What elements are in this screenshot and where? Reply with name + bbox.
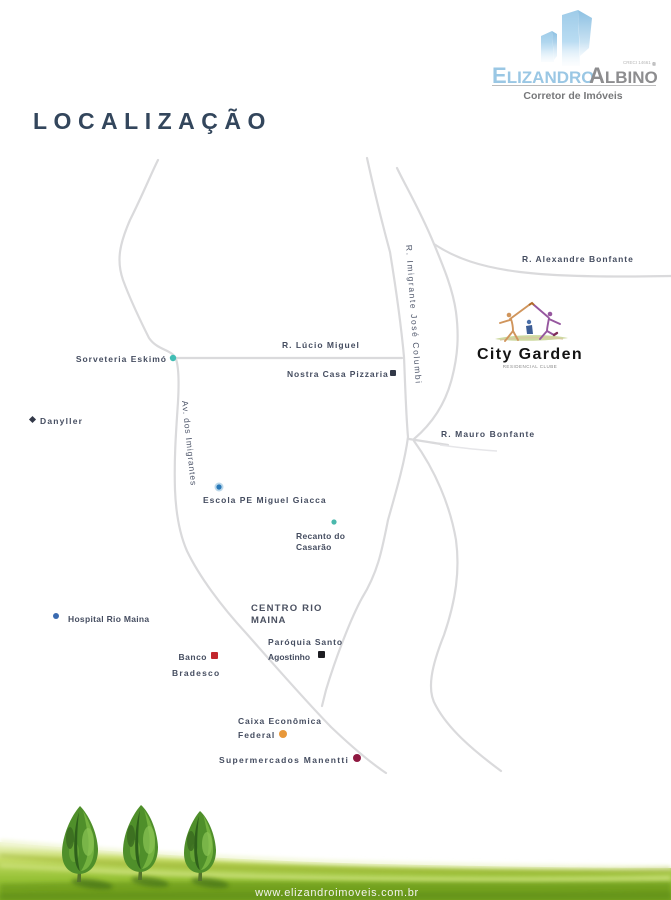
svg-text:Recanto do: Recanto do <box>296 531 345 541</box>
svg-text:Hospital Rio Maina: Hospital Rio Maina <box>68 614 149 624</box>
svg-text:Agostinho: Agostinho <box>268 652 310 662</box>
svg-text:CRECI 14661: CRECI 14661 <box>623 60 651 65</box>
svg-text:Corretor de Imóveis: Corretor de Imóveis <box>523 90 622 102</box>
svg-text:CENTRO RIO: CENTRO RIO <box>251 603 323 614</box>
svg-text:R. Alexandre Bonfante: R. Alexandre Bonfante <box>522 254 634 264</box>
svg-text:Danyller: Danyller <box>40 416 83 426</box>
svg-text:Paróquia Santo: Paróquia Santo <box>268 637 343 647</box>
svg-text:®: ® <box>652 61 656 68</box>
svg-text:LOCALIZAÇÃO: LOCALIZAÇÃO <box>33 107 272 134</box>
svg-text:RESIDENCIAL CLUBE: RESIDENCIAL CLUBE <box>503 364 558 369</box>
svg-text:Caixa Econômica: Caixa Econômica <box>238 716 322 726</box>
svg-text:MAINA: MAINA <box>251 615 286 626</box>
svg-text:Supermercados Manentti: Supermercados Manentti <box>219 755 349 765</box>
svg-text:R. Mauro Bonfante: R. Mauro Bonfante <box>441 429 535 439</box>
svg-text:Nostra Casa Pizzaria: Nostra Casa Pizzaria <box>287 369 389 379</box>
svg-text:Federal: Federal <box>238 730 275 740</box>
svg-text:Casarão: Casarão <box>296 542 332 552</box>
svg-text:City Garden: City Garden <box>477 346 583 363</box>
svg-text:Bradesco: Bradesco <box>172 668 220 678</box>
svg-text:Escola PE Miguel Giacca: Escola PE Miguel Giacca <box>203 495 327 505</box>
svg-text:Banco: Banco <box>179 652 207 662</box>
svg-text:R. Lúcio Miguel: R. Lúcio Miguel <box>282 340 360 350</box>
svg-text:Sorveteria Eskimó: Sorveteria Eskimó <box>76 354 167 364</box>
svg-text:www.elizandroimoveis.com.br: www.elizandroimoveis.com.br <box>254 887 419 899</box>
